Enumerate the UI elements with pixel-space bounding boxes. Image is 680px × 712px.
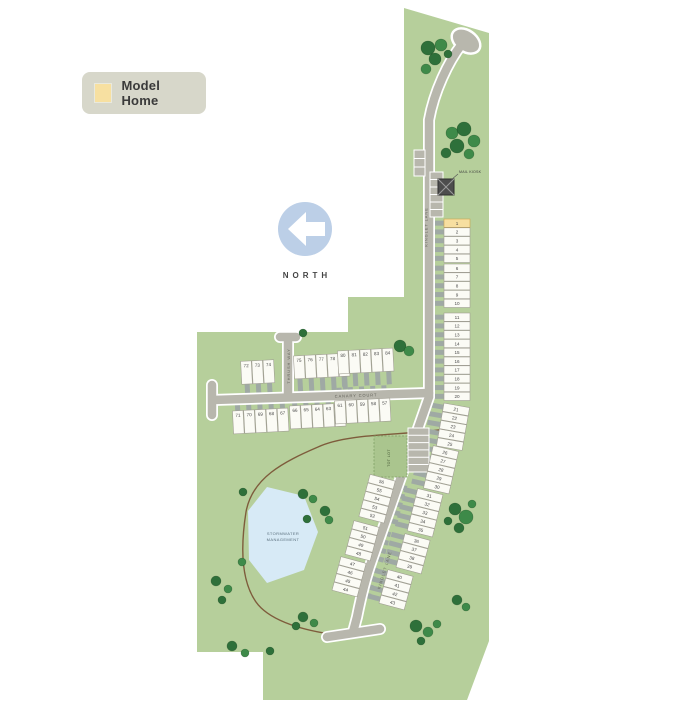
lot-number-65: 65 xyxy=(303,407,309,412)
tree-icon xyxy=(211,576,221,586)
tree-icon xyxy=(298,612,308,622)
driveway xyxy=(386,371,392,384)
tree-icon xyxy=(435,39,447,51)
tree-icon xyxy=(299,329,307,337)
lot-number-7: 7 xyxy=(456,275,459,280)
lot-number-13: 13 xyxy=(454,332,460,337)
lot-number-77: 77 xyxy=(319,357,325,362)
amenity-label: TOT LOT xyxy=(387,449,391,467)
tree-icon xyxy=(429,53,441,65)
lot-number-12: 12 xyxy=(454,324,460,329)
lot-number-4: 4 xyxy=(456,247,459,252)
tree-icon xyxy=(441,148,451,158)
lot-number-59: 59 xyxy=(360,402,366,407)
lot-number-57: 57 xyxy=(382,400,388,405)
mail-kiosk-label: MAIL KIOSK xyxy=(459,170,482,174)
driveway xyxy=(331,377,337,390)
lot-number-6: 6 xyxy=(456,266,459,271)
lot-number-5: 5 xyxy=(456,256,459,261)
tree-icon xyxy=(298,489,308,499)
lot-number-8: 8 xyxy=(456,283,459,288)
lot-number-83: 83 xyxy=(374,351,380,356)
pond-label-line2: MANAGEMENT xyxy=(267,537,300,542)
driveway xyxy=(364,372,370,385)
lot-number-61: 61 xyxy=(337,403,343,408)
driveway xyxy=(353,373,359,386)
lot-number-17: 17 xyxy=(454,368,460,373)
driveway xyxy=(297,379,303,392)
tree-icon xyxy=(218,596,226,604)
lot-number-82: 82 xyxy=(363,352,369,357)
tree-icon xyxy=(239,488,247,496)
driveway xyxy=(375,372,381,385)
tree-icon xyxy=(320,506,330,516)
driveway xyxy=(320,377,326,390)
tree-icon xyxy=(238,558,246,566)
tree-icon xyxy=(444,517,452,525)
lot-number-60: 60 xyxy=(348,402,354,407)
lot-number-58: 58 xyxy=(371,401,377,406)
tree-icon xyxy=(457,122,471,136)
lot-number-71: 71 xyxy=(235,413,241,418)
lot-number-80: 80 xyxy=(340,353,346,358)
lot-number-16: 16 xyxy=(454,359,460,364)
lot-number-81: 81 xyxy=(351,352,357,357)
lot-number-20: 20 xyxy=(454,394,460,399)
tree-icon xyxy=(224,585,232,593)
tree-icon xyxy=(450,139,464,153)
lot-number-67: 67 xyxy=(280,410,286,415)
tree-icon xyxy=(421,41,435,55)
pond-label-line1: STORMWATER xyxy=(267,531,299,536)
tree-icon xyxy=(423,627,433,637)
lot-number-19: 19 xyxy=(454,385,460,390)
tree-icon xyxy=(446,127,458,139)
lot-number-11: 11 xyxy=(455,315,460,320)
lot-number-9: 9 xyxy=(456,292,459,297)
tree-icon xyxy=(454,523,464,533)
tree-icon xyxy=(227,641,237,651)
lot-number-72: 72 xyxy=(243,363,249,368)
lot-number-18: 18 xyxy=(454,376,460,381)
lot-number-64: 64 xyxy=(315,407,321,412)
lot-number-14: 14 xyxy=(454,341,460,346)
site-plan-map: STORMWATER MANAGEMENT xyxy=(0,0,680,712)
street-label-main: KINGLET LANE xyxy=(424,207,429,246)
tree-icon xyxy=(464,149,474,159)
lot-number-78: 78 xyxy=(330,356,336,361)
tree-icon xyxy=(303,515,311,523)
tree-icon xyxy=(292,622,300,630)
tree-icon xyxy=(421,64,431,74)
tree-icon xyxy=(452,595,462,605)
lot-number-73: 73 xyxy=(255,363,261,368)
tree-icon xyxy=(404,346,414,356)
lot-number-15: 15 xyxy=(454,350,460,355)
lot-number-10: 10 xyxy=(454,301,460,306)
lot-number-1: 1 xyxy=(456,221,459,226)
lot-number-68: 68 xyxy=(269,411,275,416)
tree-icon xyxy=(462,603,470,611)
lot-number-2: 2 xyxy=(456,230,459,235)
site-plan-page: Model Home NORTH STORMWATER MANAGEMENT xyxy=(0,0,680,712)
lot-number-66: 66 xyxy=(292,408,298,413)
tree-icon xyxy=(468,135,480,147)
driveway xyxy=(309,378,315,391)
lot-number-75: 75 xyxy=(296,358,302,363)
tree-icon xyxy=(444,50,452,58)
tree-icon xyxy=(310,619,318,627)
tree-icon xyxy=(417,637,425,645)
tree-icon xyxy=(410,620,422,632)
tree-icon xyxy=(309,495,317,503)
lot-number-74: 74 xyxy=(266,362,272,367)
lot-number-70: 70 xyxy=(246,412,252,417)
tree-icon xyxy=(325,516,333,524)
lot-number-69: 69 xyxy=(258,412,264,417)
tree-icon xyxy=(468,500,476,508)
tree-icon xyxy=(433,620,441,628)
lot-number-3: 3 xyxy=(456,238,459,243)
tree-icon xyxy=(449,503,461,515)
lot-number-84: 84 xyxy=(385,350,391,355)
tree-icon xyxy=(459,510,473,524)
tree-icon xyxy=(241,649,249,657)
street-label-spur: THRUSH WAY xyxy=(286,348,291,383)
tree-icon xyxy=(266,647,274,655)
lot-number-76: 76 xyxy=(307,357,313,362)
lot-number-63: 63 xyxy=(326,406,332,411)
